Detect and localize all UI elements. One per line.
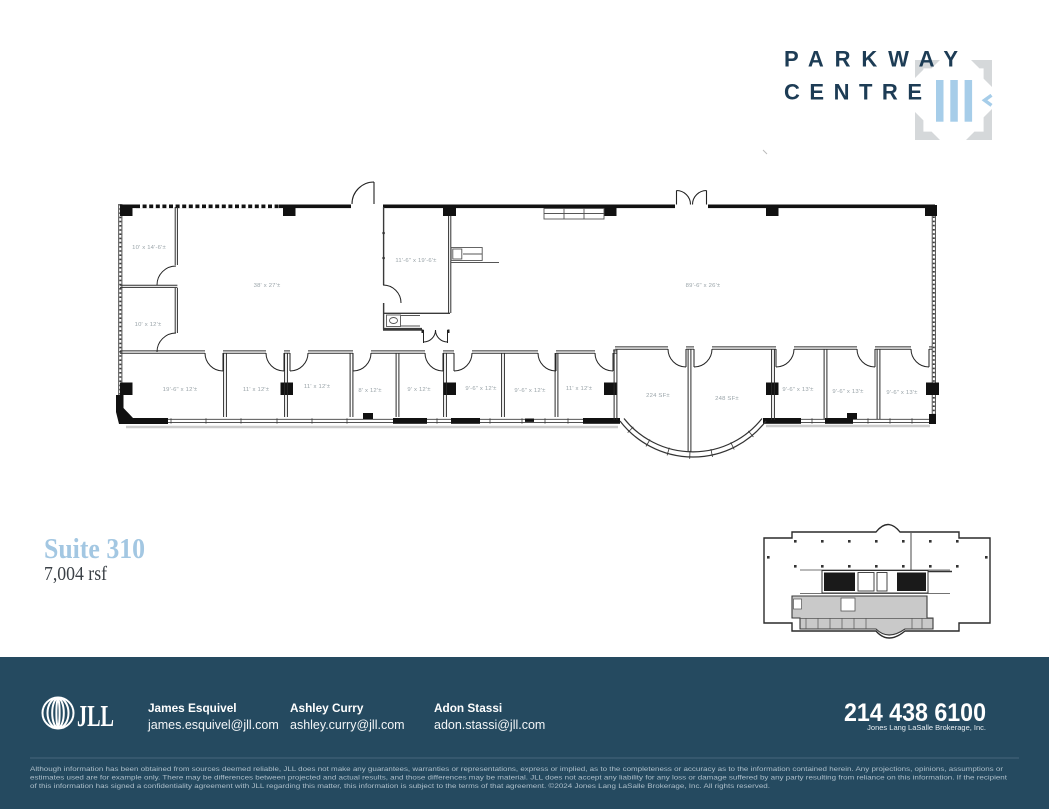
svg-text:Jones Lang LaSalle Brokerage,: Jones Lang LaSalle Brokerage, Inc. [867,723,986,732]
svg-text:Although information has been: Although information has been obtained f… [30,766,1004,773]
svg-text:9'-6" x 12'±: 9'-6" x 12'± [465,386,497,392]
svg-text:224 SF±: 224 SF± [646,393,670,399]
svg-text:11'-6" x 19'-6'±: 11'-6" x 19'-6'± [395,258,437,264]
svg-text:Adon Stassi: Adon Stassi [434,701,502,715]
svg-text:of this information has signed: of this information has signed a confide… [30,782,770,790]
svg-text:Ashley Curry: Ashley Curry [290,701,364,715]
svg-text:10' x 12'±: 10' x 12'± [135,322,162,328]
svg-text:11' x 12'±: 11' x 12'± [566,386,593,392]
svg-text:9' x 12'±: 9' x 12'± [407,387,431,393]
svg-text:89'-6" x 26'±: 89'-6" x 26'± [686,283,721,289]
svg-text:9'-6" x 12'±: 9'-6" x 12'± [514,388,546,394]
svg-text:PARKWAY: PARKWAY [784,47,958,72]
svg-text:9'-6" x 13'±: 9'-6" x 13'± [886,390,918,396]
svg-text:7,004 rsf: 7,004 rsf [44,563,107,585]
svg-text:10' x 14'-6'±: 10' x 14'-6'± [132,245,166,251]
svg-text:james.esquivel@jll.com: james.esquivel@jll.com [147,718,279,732]
svg-text:estimates used are for example: estimates used are for example only. The… [30,775,1007,782]
svg-text:9'-6" x 13'±: 9'-6" x 13'± [832,389,864,395]
svg-text:ashley.curry@jll.com: ashley.curry@jll.com [290,718,405,732]
svg-text:James Esquivel: James Esquivel [148,701,237,715]
svg-text:11' x 12'±: 11' x 12'± [304,384,331,390]
svg-text:adon.stassi@jll.com: adon.stassi@jll.com [434,718,545,732]
svg-text:8' x 12'±: 8' x 12'± [358,388,382,394]
svg-text:Suite 310: Suite 310 [44,534,145,565]
svg-text:248 SF±: 248 SF± [715,396,739,402]
svg-text:JLL: JLL [77,698,114,733]
svg-text:11' x 12'±: 11' x 12'± [243,387,270,393]
svg-text:38' x 27'±: 38' x 27'± [254,283,281,289]
svg-text:19'-6" x 12'±: 19'-6" x 12'± [163,387,198,393]
svg-text:9'-6" x 13'±: 9'-6" x 13'± [782,387,814,393]
